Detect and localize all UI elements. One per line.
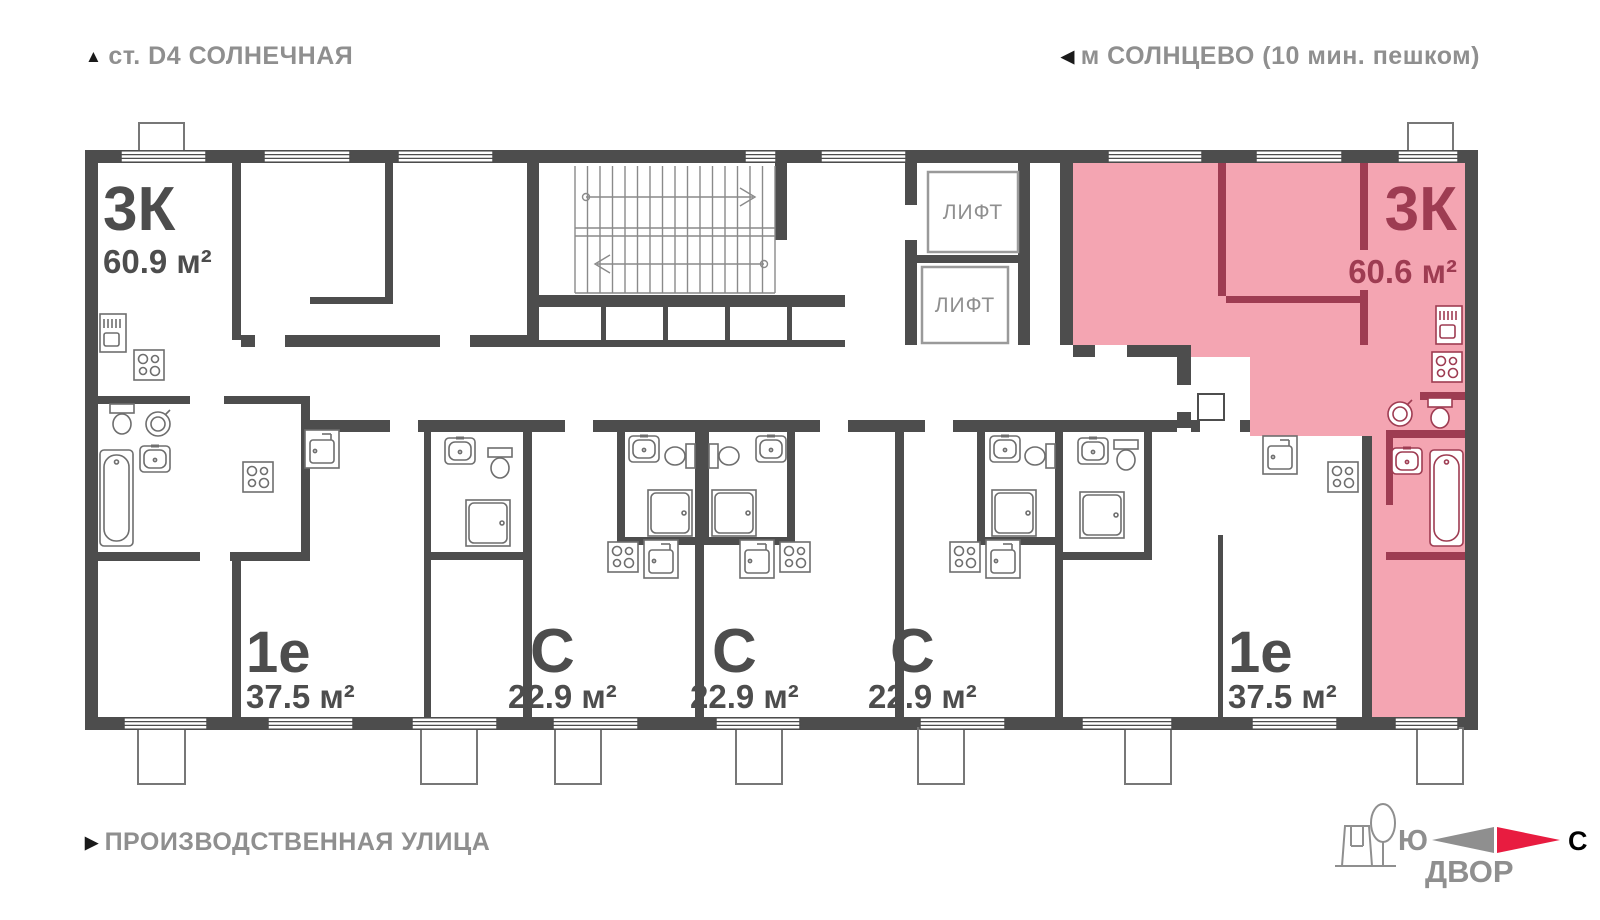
stove-icon <box>608 542 638 572</box>
unit-type: 1е <box>1228 620 1293 685</box>
unit-area: 22.9 м² <box>508 678 617 715</box>
floorplan-svg: ЛИФТ ЛИФТ <box>0 0 1600 920</box>
courtyard-icon <box>1335 804 1396 866</box>
shower-icon <box>1080 492 1124 538</box>
unit-area: 37.5 м² <box>1228 678 1337 715</box>
unit-type: С <box>890 617 935 686</box>
toilet-icon <box>1428 398 1452 428</box>
shower-icon <box>712 490 756 536</box>
stove-icon <box>134 350 164 380</box>
unit-area: 37.5 м² <box>246 678 355 715</box>
door-leaf <box>1198 394 1224 420</box>
elevator-1-label: ЛИФТ <box>943 201 1004 224</box>
courtyard-label: ДВОР <box>1425 854 1514 889</box>
sink-icon <box>1078 438 1108 464</box>
toilet-icon <box>488 448 512 478</box>
unit-label-3k-left[interactable]: 3К 60.9 м² <box>103 175 212 280</box>
unit-label-c-3[interactable]: С 22.9 м² <box>868 617 977 715</box>
elevator-2-label: ЛИФТ <box>935 294 996 317</box>
shower-icon <box>466 500 510 546</box>
staircase <box>575 166 775 293</box>
kitchen-sink-icon <box>644 540 678 578</box>
kitchen-sink-icon <box>1263 436 1297 474</box>
stove-icon <box>780 542 810 572</box>
unit-label-1e-right[interactable]: 1е 37.5 м² <box>1228 620 1337 715</box>
bathtub-icon <box>1430 450 1463 546</box>
sink-icon <box>140 446 170 472</box>
kitchen-sink-icon <box>305 430 339 468</box>
toilet-icon <box>1025 444 1055 468</box>
unit-area: 22.9 м² <box>690 678 799 715</box>
sink-icon <box>445 438 475 464</box>
shower-icon <box>648 490 692 536</box>
unit-area: 60.6 м² <box>1348 253 1457 290</box>
toilet-icon <box>1114 440 1138 470</box>
stove-icon <box>950 542 980 572</box>
toilet-icon <box>665 444 695 468</box>
kitchen-sink-icon <box>740 540 774 578</box>
sink-icon <box>756 436 786 462</box>
shower-head-icon <box>146 410 170 436</box>
floorplan-page: ▲ст. D4 СОЛНЕЧНАЯ ◀м СОЛНЦЕВО (10 мин. п… <box>0 0 1600 920</box>
kitchen-sink-icon <box>986 540 1020 578</box>
south-arrow-icon <box>1432 827 1494 853</box>
unit-area: 60.9 м² <box>103 243 212 280</box>
fridge-icon <box>100 314 126 352</box>
north-label: С <box>1568 826 1588 856</box>
unit-label-1e-left[interactable]: 1е 37.5 м² <box>246 620 355 715</box>
shower-icon <box>992 490 1036 536</box>
unit-type: С <box>712 617 757 686</box>
sink-icon <box>1392 448 1422 474</box>
unit-type: 3К <box>1385 175 1457 244</box>
stove-icon <box>1328 462 1358 492</box>
bathtub-icon <box>100 450 133 546</box>
toilet-icon <box>709 444 739 468</box>
sink-icon <box>629 436 659 462</box>
unit-type: 3К <box>103 175 175 244</box>
sink-icon <box>990 436 1020 462</box>
south-label: Ю <box>1398 825 1428 857</box>
fridge-icon <box>1436 306 1462 344</box>
toilet-icon <box>110 404 134 434</box>
unit-label-c-2[interactable]: С 22.9 м² <box>690 617 799 715</box>
unit-type: С <box>530 617 575 686</box>
compass-arrow <box>1432 827 1560 853</box>
unit-type: 1е <box>246 620 311 685</box>
stove-icon <box>1432 352 1462 382</box>
stove-icon <box>243 462 273 492</box>
north-arrow-icon <box>1497 827 1560 853</box>
unit-area: 22.9 м² <box>868 678 977 715</box>
